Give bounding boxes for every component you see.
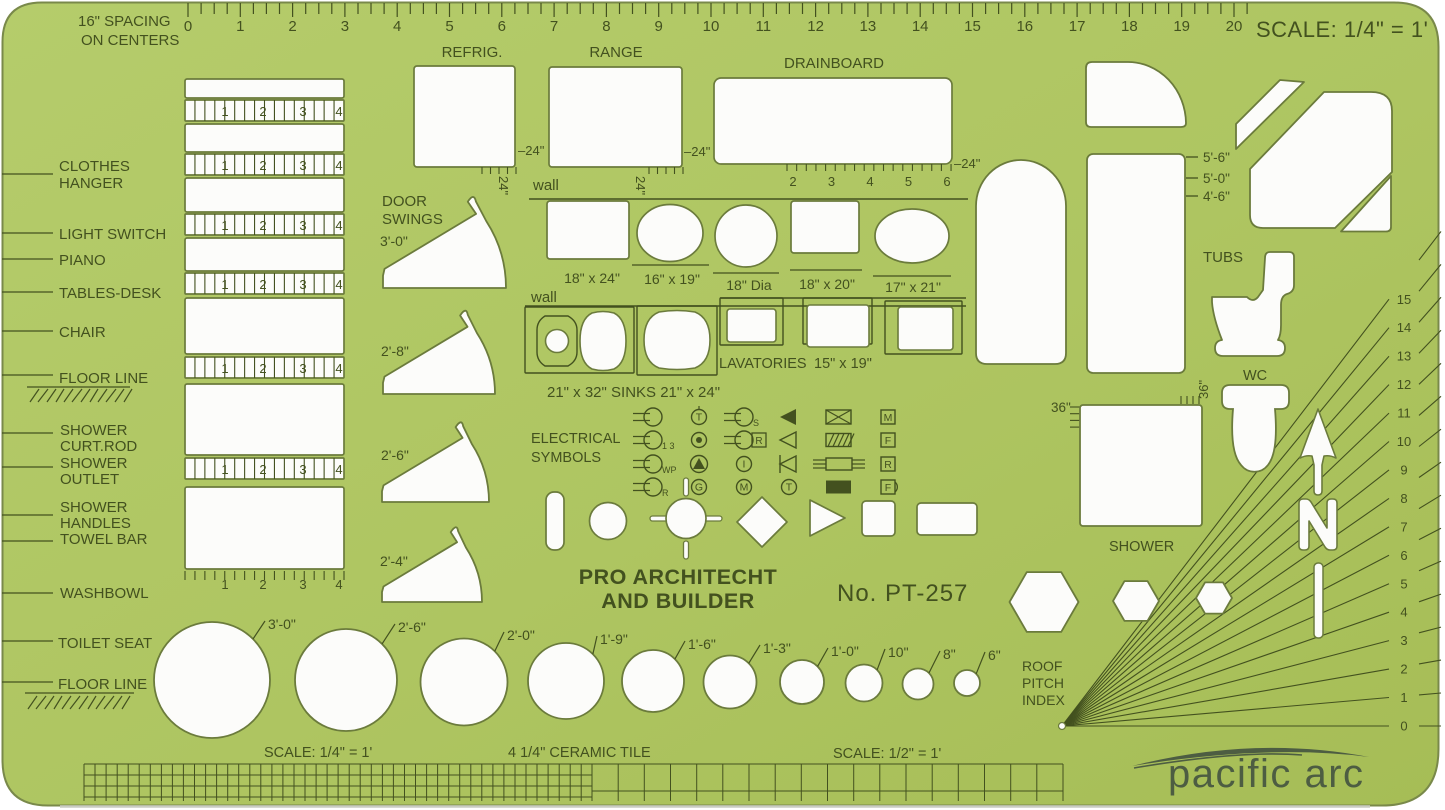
svg-text:M: M [740, 482, 749, 494]
svg-text:2'-4": 2'-4" [380, 553, 408, 569]
svg-text:WP: WP [662, 465, 677, 475]
svg-text:R: R [755, 436, 762, 447]
svg-text:1: 1 [221, 577, 228, 592]
svg-text:I: I [743, 459, 746, 471]
svg-text:16" x 19": 16" x 19" [644, 271, 700, 287]
svg-text:11: 11 [756, 18, 772, 35]
svg-text:0: 0 [184, 18, 192, 35]
svg-text:2'-6": 2'-6" [398, 619, 426, 635]
svg-text:18" Dia: 18" Dia [726, 277, 772, 293]
svg-text:R: R [884, 459, 892, 471]
svg-text:2: 2 [259, 158, 266, 173]
svg-text:12: 12 [807, 18, 824, 35]
svg-text:No. PT-257: No. PT-257 [837, 580, 968, 607]
svg-text:12: 12 [1397, 377, 1411, 392]
svg-text:ON CENTERS: ON CENTERS [81, 32, 179, 49]
svg-text:TABLES-DESK: TABLES-DESK [59, 285, 161, 302]
svg-text:36": 36" [1196, 380, 1211, 399]
svg-text:F: F [885, 435, 891, 447]
svg-text:2'-0": 2'-0" [507, 627, 535, 643]
svg-text:14: 14 [1397, 320, 1411, 335]
svg-text:3: 3 [299, 277, 306, 292]
svg-text:4: 4 [335, 462, 342, 477]
svg-text:SYMBOLS: SYMBOLS [531, 450, 601, 466]
svg-text:10": 10" [888, 644, 909, 660]
svg-text:ROOF: ROOF [1022, 658, 1062, 674]
svg-text:7: 7 [550, 18, 558, 35]
svg-text:DRAINBOARD: DRAINBOARD [784, 55, 884, 72]
svg-text:2'-8": 2'-8" [381, 343, 409, 359]
svg-text:9: 9 [1400, 462, 1407, 477]
svg-text:11: 11 [1397, 406, 1411, 421]
svg-text:2: 2 [1400, 662, 1407, 677]
svg-text:4: 4 [335, 277, 342, 292]
svg-text:0: 0 [1400, 719, 1407, 734]
svg-text:3: 3 [828, 174, 835, 189]
svg-text:6: 6 [1400, 548, 1407, 563]
svg-text:5: 5 [905, 174, 912, 189]
svg-text:3: 3 [299, 462, 306, 477]
svg-text:3: 3 [299, 158, 306, 173]
svg-text:8": 8" [943, 646, 956, 662]
svg-text:18" x 20": 18" x 20" [799, 276, 855, 292]
svg-text:CHAIR: CHAIR [59, 324, 106, 341]
svg-text:INDEX: INDEX [1022, 692, 1065, 708]
svg-text:pacific arc: pacific arc [1168, 752, 1365, 796]
svg-text:F: F [885, 482, 891, 494]
svg-text:3: 3 [341, 18, 349, 35]
svg-text:WASHBOWL: WASHBOWL [60, 585, 149, 602]
svg-text:6: 6 [943, 174, 950, 189]
svg-text:LAVATORIES: LAVATORIES [719, 356, 807, 372]
svg-text:4: 4 [335, 577, 342, 592]
svg-text:ELECTRICAL: ELECTRICAL [531, 431, 620, 447]
svg-text:wall: wall [530, 289, 557, 306]
svg-text:–24": –24" [954, 156, 981, 171]
svg-text:2: 2 [259, 577, 266, 592]
svg-text:1 3: 1 3 [662, 441, 675, 451]
svg-text:4: 4 [335, 104, 342, 119]
svg-text:3: 3 [299, 104, 306, 119]
svg-text:2'-6": 2'-6" [381, 447, 409, 463]
svg-text:RANGE: RANGE [589, 44, 642, 61]
svg-text:–24": –24" [684, 144, 711, 159]
svg-text:2: 2 [259, 104, 266, 119]
svg-text:1: 1 [221, 277, 228, 292]
svg-text:1'-0": 1'-0" [831, 643, 859, 659]
svg-text:FLOOR LINE: FLOOR LINE [59, 370, 148, 387]
svg-text:TOILET SEAT: TOILET SEAT [58, 635, 152, 652]
svg-text:5: 5 [445, 18, 453, 35]
svg-text:TUBS: TUBS [1203, 249, 1243, 266]
svg-text:AND BUILDER: AND BUILDER [601, 589, 755, 613]
svg-text:OUTLET: OUTLET [60, 471, 119, 488]
svg-text:21" x 32" SINKS 21" x 24": 21" x 32" SINKS 21" x 24" [547, 384, 720, 401]
svg-text:PITCH: PITCH [1022, 675, 1064, 691]
svg-text:1: 1 [236, 18, 244, 35]
svg-text:4 1/4" CERAMIC TILE: 4 1/4" CERAMIC TILE [508, 745, 651, 761]
svg-text:1'-3": 1'-3" [763, 640, 791, 656]
svg-text:M: M [884, 412, 893, 424]
svg-text:2: 2 [259, 462, 266, 477]
svg-text:SHOWER: SHOWER [1109, 539, 1174, 555]
svg-text:4: 4 [335, 158, 342, 173]
svg-text:15: 15 [1397, 292, 1411, 307]
svg-text:SCALE: 1/4" = 1': SCALE: 1/4" = 1' [1256, 17, 1428, 42]
svg-text:1: 1 [221, 158, 228, 173]
svg-text:4: 4 [393, 18, 401, 35]
svg-text:4'-6": 4'-6" [1203, 189, 1230, 204]
svg-text:2: 2 [259, 277, 266, 292]
svg-text:T: T [786, 482, 793, 494]
svg-text:5: 5 [1400, 576, 1407, 591]
svg-text:3'-0": 3'-0" [380, 233, 408, 249]
svg-text:SCALE: 1/4" = 1': SCALE: 1/4" = 1' [264, 745, 373, 761]
svg-text:10: 10 [703, 18, 720, 35]
svg-text:6": 6" [988, 647, 1001, 663]
svg-text:SHOWER: SHOWER [60, 422, 128, 439]
svg-text:SHOWER: SHOWER [60, 499, 128, 516]
svg-text:17" x 21": 17" x 21" [885, 279, 941, 295]
svg-text:HANDLES: HANDLES [60, 515, 131, 532]
svg-text:HANGER: HANGER [59, 175, 123, 192]
svg-text:S: S [753, 418, 759, 428]
svg-text:–24": –24" [518, 143, 545, 158]
svg-text:15: 15 [964, 18, 981, 35]
svg-text:LIGHT SWITCH: LIGHT SWITCH [59, 226, 166, 243]
svg-text:8: 8 [602, 18, 610, 35]
svg-text:17: 17 [1069, 18, 1086, 35]
svg-text:4: 4 [335, 218, 342, 233]
svg-text:DOOR: DOOR [382, 193, 427, 210]
svg-text:18" x 24": 18" x 24" [564, 270, 620, 286]
svg-text:SWINGS: SWINGS [382, 211, 443, 228]
svg-text:TOWEL BAR: TOWEL BAR [60, 531, 148, 548]
svg-text:WC: WC [1243, 368, 1267, 384]
svg-text:15" x 19": 15" x 19" [814, 356, 872, 372]
svg-text:SHOWER: SHOWER [60, 455, 128, 472]
svg-text:1: 1 [221, 218, 228, 233]
svg-text:5'-0": 5'-0" [1203, 171, 1230, 186]
svg-text:wall: wall [532, 177, 559, 194]
svg-text:REFRIG.: REFRIG. [442, 44, 503, 61]
svg-text:16: 16 [1016, 18, 1033, 35]
svg-text:T: T [696, 412, 703, 424]
svg-text:4: 4 [1400, 605, 1407, 620]
svg-text:20: 20 [1226, 18, 1243, 35]
svg-text:PIANO: PIANO [59, 252, 106, 269]
svg-text:8: 8 [1400, 491, 1407, 506]
svg-text:R: R [662, 488, 669, 498]
svg-text:18: 18 [1121, 18, 1138, 35]
svg-text:10: 10 [1397, 434, 1411, 449]
svg-text:3: 3 [1400, 633, 1407, 648]
svg-text:4: 4 [335, 361, 342, 376]
svg-text:1: 1 [1400, 690, 1407, 705]
svg-text:9: 9 [655, 18, 663, 35]
svg-text:16" SPACING: 16" SPACING [78, 13, 171, 30]
svg-text:19: 19 [1173, 18, 1190, 35]
svg-text:1'-6": 1'-6" [688, 636, 716, 652]
svg-text:SCALE: 1/2" = 1': SCALE: 1/2" = 1' [833, 746, 942, 762]
svg-text:13: 13 [860, 18, 877, 35]
svg-text:2: 2 [288, 18, 296, 35]
svg-text:2: 2 [789, 174, 796, 189]
svg-text:3: 3 [299, 577, 306, 592]
svg-text:G: G [695, 482, 703, 494]
svg-text:4: 4 [866, 174, 873, 189]
svg-text:1: 1 [221, 104, 228, 119]
svg-text:3: 3 [299, 218, 306, 233]
svg-text:1: 1 [221, 462, 228, 477]
svg-text:24": 24" [633, 176, 648, 195]
svg-text:3: 3 [299, 361, 306, 376]
svg-text:2: 2 [259, 218, 266, 233]
svg-text:2: 2 [259, 361, 266, 376]
svg-text:FLOOR LINE: FLOOR LINE [58, 676, 147, 693]
svg-text:13: 13 [1397, 349, 1411, 364]
svg-text:3'-0": 3'-0" [268, 616, 296, 632]
svg-text:36": 36" [1051, 400, 1071, 415]
svg-text:1'-9": 1'-9" [600, 631, 628, 647]
svg-text:CURT.ROD: CURT.ROD [60, 438, 137, 455]
svg-text:PRO ARCHITECHT: PRO ARCHITECHT [579, 565, 778, 589]
svg-text:CLOTHES: CLOTHES [59, 158, 130, 175]
svg-text:1: 1 [221, 361, 228, 376]
svg-text:6: 6 [498, 18, 506, 35]
svg-text:24": 24" [496, 176, 511, 195]
svg-text:7: 7 [1400, 519, 1407, 534]
svg-text:5'-6": 5'-6" [1203, 150, 1230, 165]
svg-text:14: 14 [912, 18, 929, 35]
